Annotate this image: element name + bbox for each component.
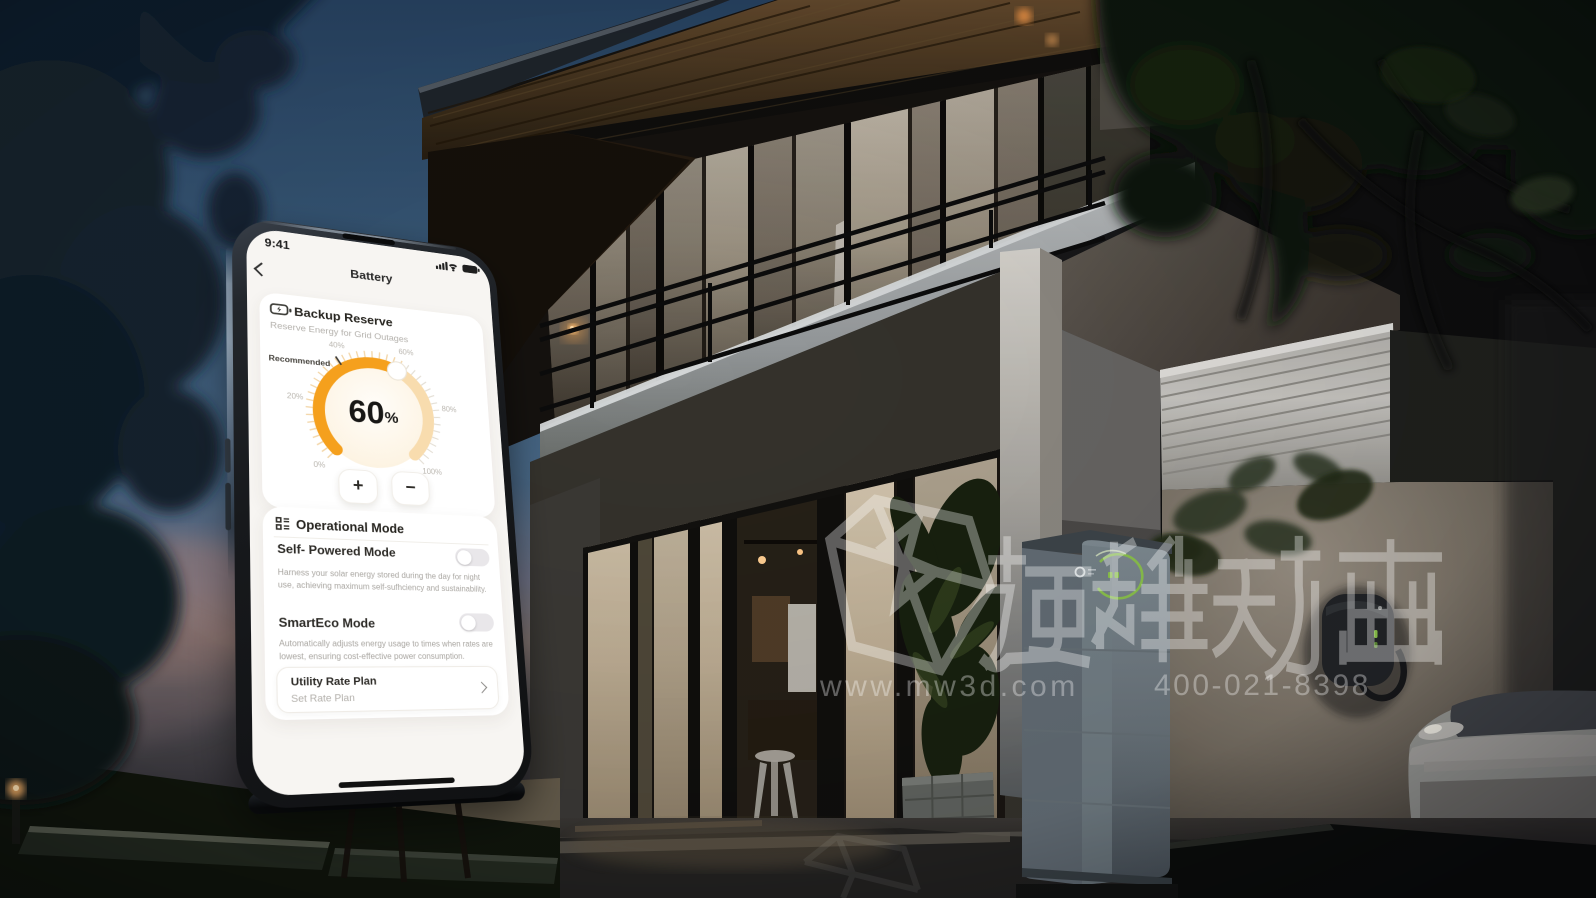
svg-text:400-021-8398: 400-021-8398 [1154, 669, 1371, 702]
svg-text:Recommended: Recommended [268, 353, 330, 368]
svg-text:0%: 0% [313, 460, 325, 470]
svg-text:80%: 80% [441, 405, 456, 415]
svg-text:60%: 60% [398, 348, 413, 358]
svg-text:20%: 20% [287, 391, 304, 401]
svg-text:40%: 40% [329, 340, 345, 350]
svg-text:www.mw3d.com: www.mw3d.com [819, 670, 1079, 703]
